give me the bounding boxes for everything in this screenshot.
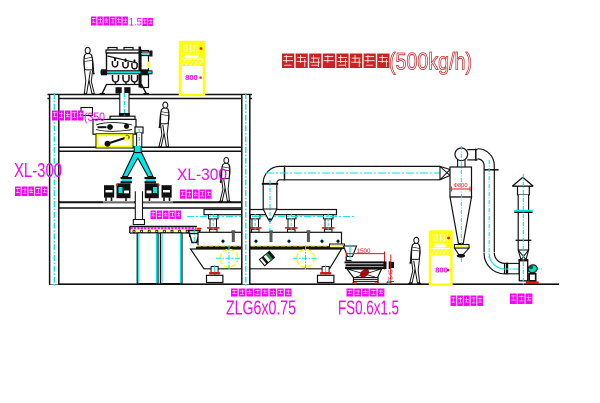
svg-text:545: 545	[389, 270, 395, 280]
svg-text:800: 800	[435, 266, 448, 275]
svg-text:1.5: 1.5	[129, 16, 142, 28]
svg-text:Φ800: Φ800	[454, 183, 468, 189]
svg-text:XL-300: XL-300	[14, 160, 62, 182]
svg-text:1500: 1500	[357, 249, 372, 255]
svg-text:XL-300: XL-300	[177, 165, 227, 184]
svg-text:(350: (350	[84, 110, 105, 124]
svg-text:(500kg/h): (500kg/h)	[389, 49, 472, 76]
svg-text:800: 800	[185, 73, 198, 82]
svg-text:FS0.6x1.5: FS0.6x1.5	[338, 298, 399, 320]
svg-text:ZLG6x0.75: ZLG6x0.75	[226, 298, 296, 320]
